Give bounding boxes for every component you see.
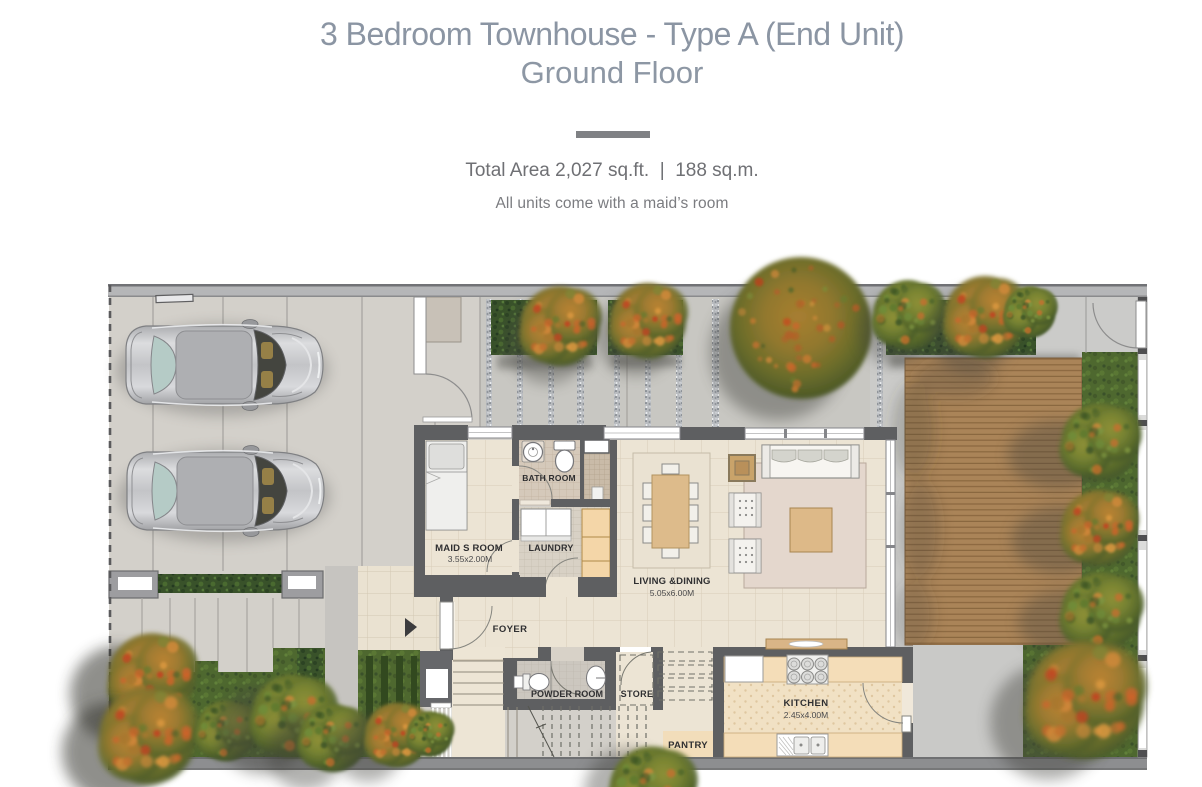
- svg-text:FOYER: FOYER: [493, 624, 528, 635]
- svg-text:3.55x2.00M: 3.55x2.00M: [448, 554, 492, 564]
- svg-text:POWDER ROOM: POWDER ROOM: [531, 689, 603, 699]
- svg-text:MAID S ROOM: MAID S ROOM: [435, 543, 503, 554]
- svg-text:KITCHEN: KITCHEN: [783, 698, 828, 709]
- svg-text:5.05x6.00M: 5.05x6.00M: [650, 588, 694, 598]
- svg-text:STORE: STORE: [621, 689, 654, 699]
- svg-text:BATH ROOM: BATH ROOM: [522, 473, 576, 483]
- svg-text:LIVING &DINING: LIVING &DINING: [633, 576, 710, 587]
- svg-text:PANTRY: PANTRY: [668, 740, 708, 751]
- svg-text:2.45x4.00M: 2.45x4.00M: [784, 710, 828, 720]
- svg-text:LAUNDRY: LAUNDRY: [528, 543, 573, 553]
